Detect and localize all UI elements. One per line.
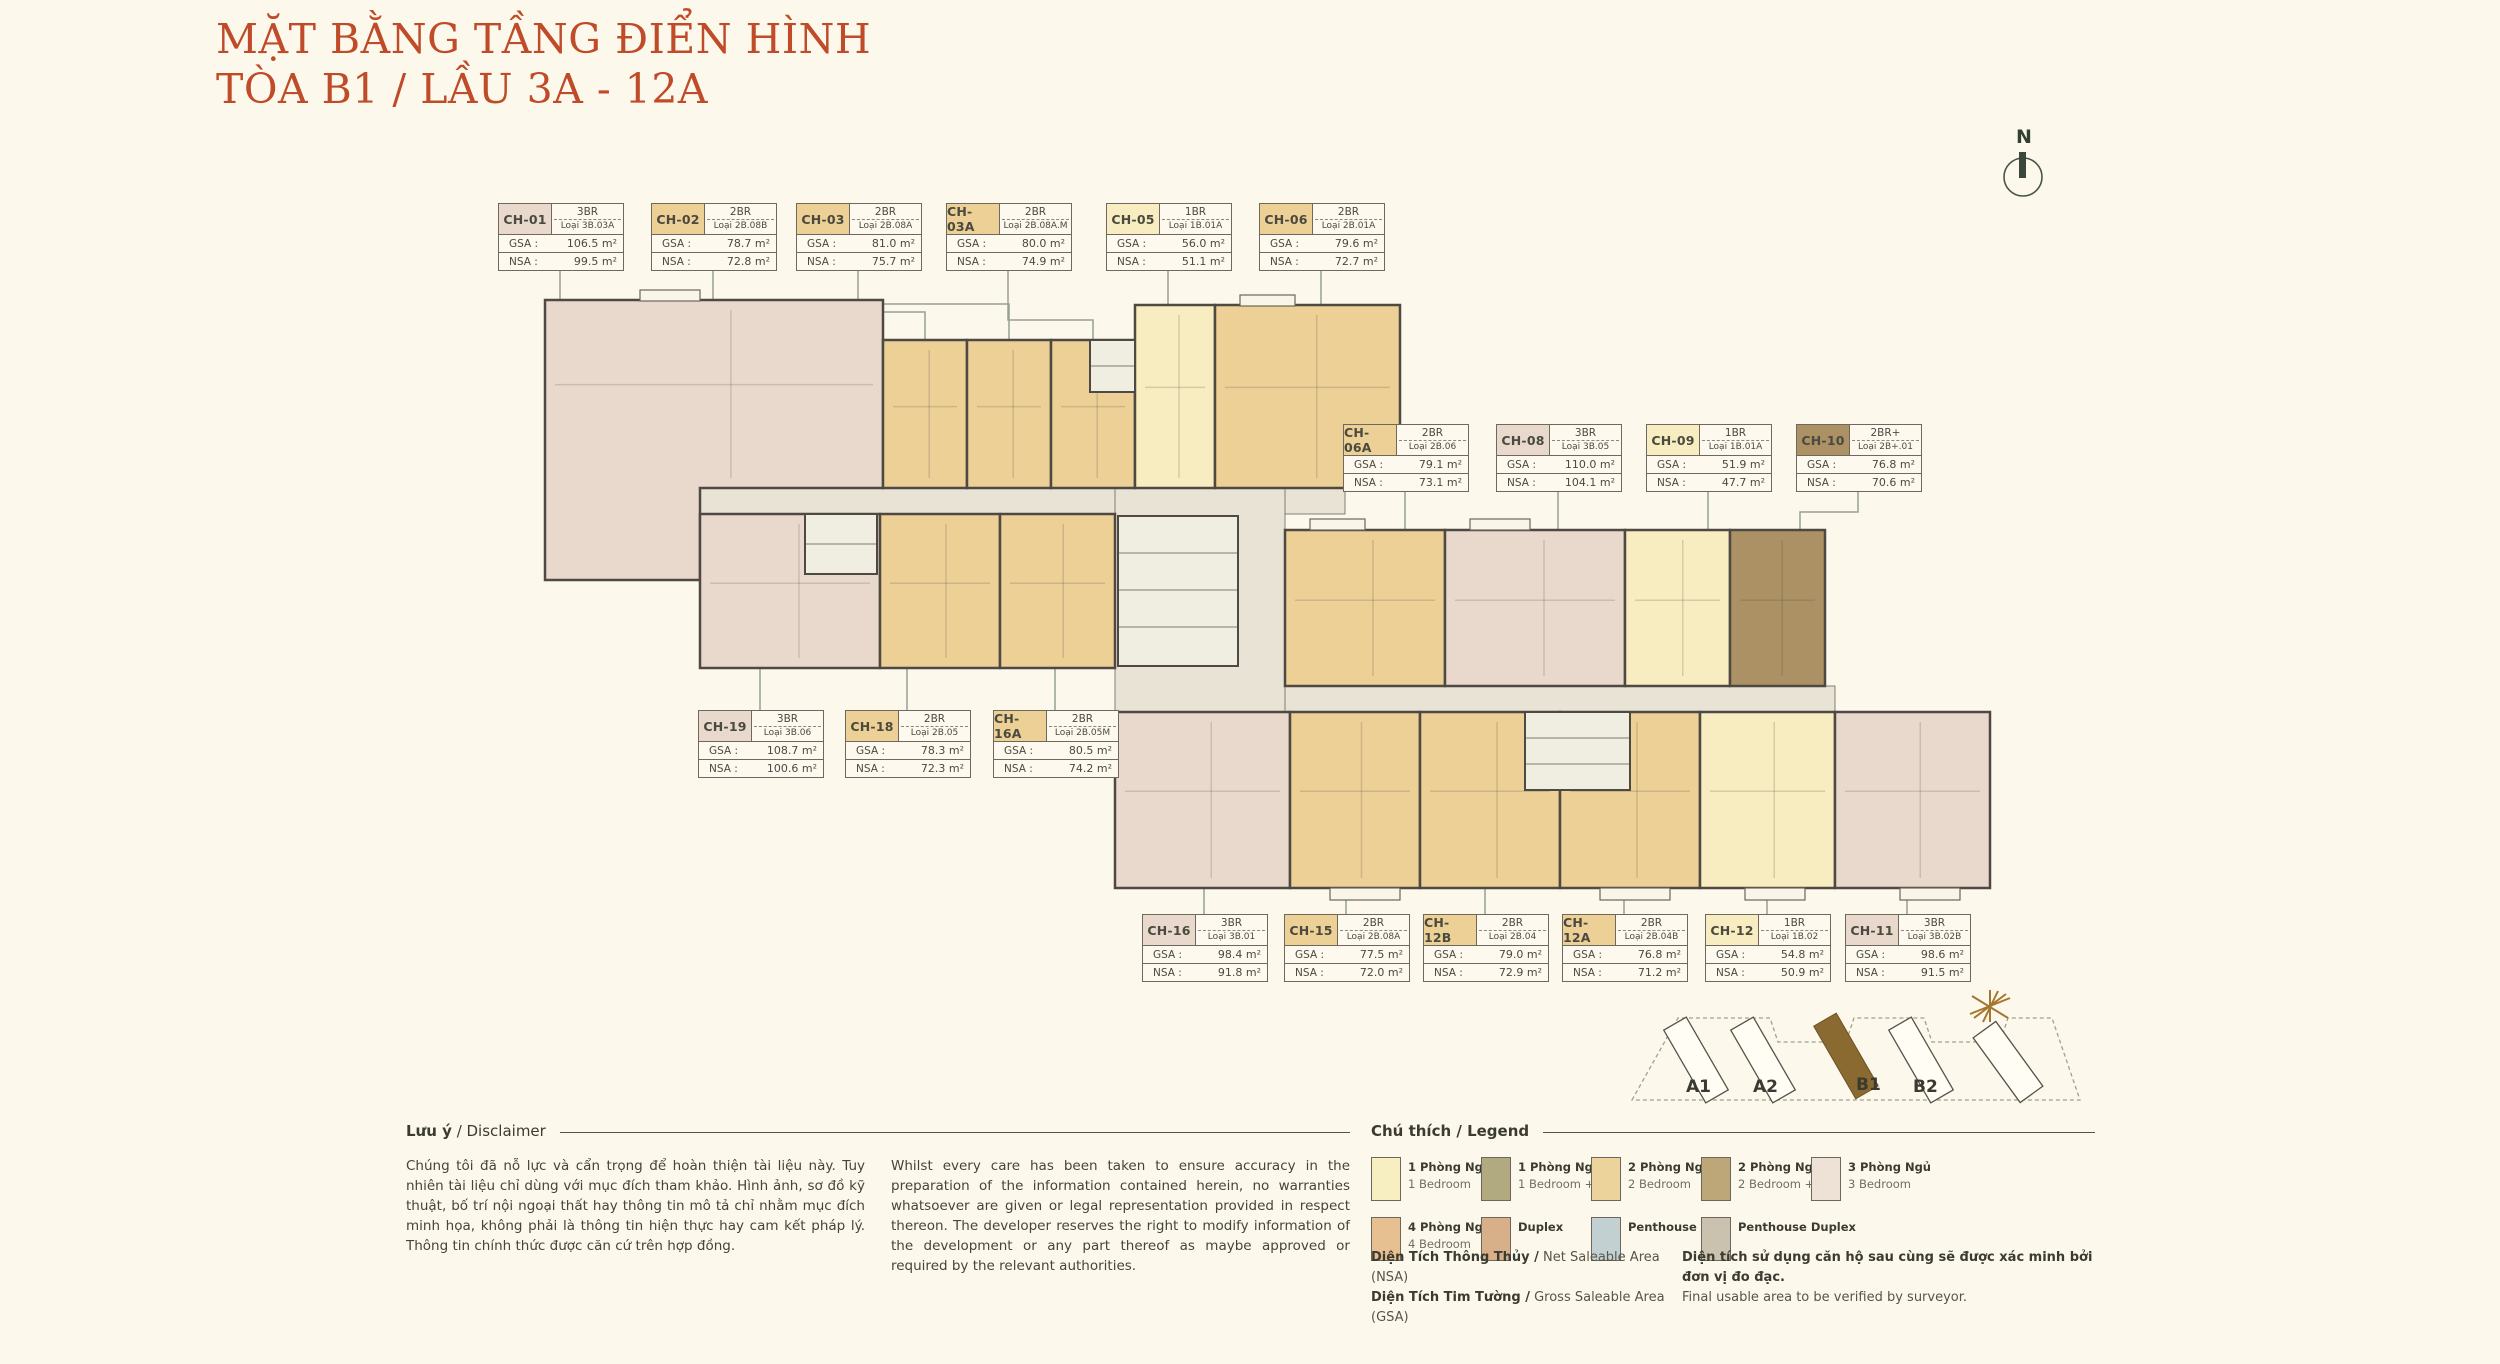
unit-nsa-value: 104.1 m² xyxy=(1536,476,1615,489)
unit-gsa-value: 56.0 m² xyxy=(1146,237,1225,250)
unit-gsa-row: GSA :108.7 m² xyxy=(699,742,823,759)
sitemap-label-b1: B1 xyxy=(1856,1075,1881,1095)
unit-gsa-value: 78.7 m² xyxy=(691,237,770,250)
unit-nsa-value: 75.7 m² xyxy=(836,255,915,268)
disclaimer-heading-rest: / Disclaimer xyxy=(452,1122,546,1140)
compass-n-label: N xyxy=(2016,126,2032,148)
leader-ch-03a xyxy=(1008,270,1093,340)
unit-gsa-value: 76.8 m² xyxy=(1836,458,1915,471)
unit-gsa-row: GSA :80.5 m² xyxy=(994,742,1118,759)
unit-id: CH-16A xyxy=(994,711,1047,741)
unit-ch-12 xyxy=(1700,712,1835,888)
unit-id: CH-05 xyxy=(1107,204,1160,234)
unit-bedroom-type: 2BR xyxy=(1072,713,1093,726)
unit-gsa-row: GSA :98.6 m² xyxy=(1846,946,1970,963)
unit-id: CH-11 xyxy=(1846,915,1899,945)
unit-label-ch-16: CH-163BRLoại 3B.01GSA :98.4 m²NSA :91.8 … xyxy=(1142,914,1268,982)
unit-nsa-row: NSA :72.8 m² xyxy=(652,252,776,270)
unit-bedroom-type: 2BR xyxy=(730,206,751,219)
unit-gsa-value: 80.5 m² xyxy=(1033,744,1112,757)
unit-gsa-row: GSA :79.6 m² xyxy=(1260,235,1384,252)
unit-nsa-row: NSA :72.7 m² xyxy=(1260,252,1384,270)
unit-gsa-value: 51.9 m² xyxy=(1686,458,1765,471)
unit-label-ch-02: CH-022BRLoại 2B.08BGSA :78.7 m²NSA :72.8… xyxy=(651,203,777,271)
unit-gsa-row: GSA :106.5 m² xyxy=(499,235,623,252)
unit-bedroom-type: 1BR xyxy=(1185,206,1206,219)
unit-label-ch-05: CH-051BRLoại 1B.01AGSA :56.0 m²NSA :51.1… xyxy=(1106,203,1232,271)
legend-heading-text: Chú thích / Legend xyxy=(1371,1122,1529,1140)
unit-layout-code: Loại 2B.04 xyxy=(1479,930,1546,944)
unit-nsa-row: NSA :51.1 m² xyxy=(1107,252,1231,270)
unit-gsa-row: GSA :76.8 m² xyxy=(1563,946,1687,963)
unit-id: CH-06A xyxy=(1344,425,1397,455)
unit-layout-code: Loại 3B.06 xyxy=(754,726,821,740)
legend-item-4: 3 Phòng Ngủ3 Bedroom xyxy=(1811,1157,1921,1201)
disclaimer-heading-rule xyxy=(560,1132,1350,1133)
surveyor-note: Diện tích sử dụng căn hộ sau cùng sẽ đượ… xyxy=(1682,1248,2112,1308)
unit-nsa-value: 72.3 m² xyxy=(885,762,964,775)
unit-label-ch-01: CH-013BRLoại 3B.03AGSA :106.5 m²NSA :99.… xyxy=(498,203,624,271)
unit-nsa-value: 72.0 m² xyxy=(1324,966,1403,979)
unit-nsa-row: NSA :73.1 m² xyxy=(1344,473,1468,491)
area-definitions: Diện Tích Thông Thủy / Net Saleable Area… xyxy=(1371,1248,1671,1328)
unit-id: CH-08 xyxy=(1497,425,1550,455)
legend: Chú thích / Legend 1 Phòng Ngủ1 Bedroom1… xyxy=(1371,1122,2095,1261)
unit-nsa-row: NSA :72.0 m² xyxy=(1285,963,1409,981)
unit-layout-code: Loại 3B.01 xyxy=(1198,930,1265,944)
brochure-page: CH-013BRLoại 3B.03AGSA :106.5 m²NSA :99.… xyxy=(0,0,2500,1364)
legend-item-1: 1 Phòng Ngủ +1 Bedroom + xyxy=(1481,1157,1591,1201)
unit-id: CH-09 xyxy=(1647,425,1700,455)
unit-ch-16 xyxy=(1115,712,1290,888)
legend-swatch xyxy=(1371,1157,1401,1201)
unit-nsa-row: NSA :91.5 m² xyxy=(1846,963,1970,981)
unit-gsa-row: GSA :77.5 m² xyxy=(1285,946,1409,963)
unit-bedroom-type: 3BR xyxy=(777,713,798,726)
unit-id: CH-19 xyxy=(699,711,752,741)
unit-label-ch-03: CH-032BRLoại 2B.08AGSA :81.0 m²NSA :75.7… xyxy=(796,203,922,271)
unit-nsa-value: 99.5 m² xyxy=(538,255,617,268)
unit-ch-02 xyxy=(883,340,967,488)
unit-ch-18 xyxy=(880,514,1000,668)
disclaimer: Lưu ý / Disclaimer Chúng tôi đã nỗ lực v… xyxy=(406,1122,1350,1277)
legend-label-vi: 4 Phòng Ngủ xyxy=(1408,1219,1491,1236)
unit-gsa-value: 81.0 m² xyxy=(836,237,915,250)
legend-label-vi: 3 Phòng Ngủ xyxy=(1848,1159,1931,1176)
unit-gsa-row: GSA :76.8 m² xyxy=(1797,456,1921,473)
unit-label-ch-03a: CH-03A2BRLoại 2B.08A.MGSA :80.0 m²NSA :7… xyxy=(946,203,1072,271)
unit-gsa-row: GSA :78.3 m² xyxy=(846,742,970,759)
unit-gsa-value: 98.4 m² xyxy=(1182,948,1261,961)
sitemap-label-a2: A2 xyxy=(1753,1077,1778,1097)
unit-label-ch-08: CH-083BRLoại 3B.05GSA :110.0 m²NSA :104.… xyxy=(1496,424,1622,492)
leader-ch-10 xyxy=(1800,488,1858,530)
unit-ch-03 xyxy=(967,340,1051,488)
unit-label-ch-12a: CH-12A2BRLoại 2B.04BGSA :76.8 m²NSA :71.… xyxy=(1562,914,1688,982)
unit-layout-code: Loại 2B.08B xyxy=(707,219,774,233)
unit-gsa-value: 54.8 m² xyxy=(1745,948,1824,961)
unit-ch-10 xyxy=(1730,530,1825,686)
legend-label-vi: Duplex xyxy=(1518,1219,1563,1236)
north-compass-icon: N xyxy=(1995,112,2065,207)
legend-label-vi: Penthouse xyxy=(1628,1219,1697,1236)
disclaimer-heading: Lưu ý / Disclaimer xyxy=(406,1122,1350,1140)
unit-ch-06a xyxy=(1285,530,1445,686)
unit-bedroom-type: 1BR xyxy=(1725,427,1746,440)
legend-label-vi: Penthouse Duplex xyxy=(1738,1219,1856,1236)
unit-bedroom-type: 2BR xyxy=(1422,427,1443,440)
unit-gsa-value: 80.0 m² xyxy=(986,237,1065,250)
unit-bedroom-type: 3BR xyxy=(1575,427,1596,440)
unit-bedroom-type: 2BR+ xyxy=(1871,427,1901,440)
unit-nsa-value: 74.9 m² xyxy=(986,255,1065,268)
unit-gsa-value: 110.0 m² xyxy=(1536,458,1615,471)
unit-label-ch-06a: CH-06A2BRLoại 2B.06GSA :79.1 m²NSA :73.1… xyxy=(1343,424,1469,492)
legend-item-0: 1 Phòng Ngủ1 Bedroom xyxy=(1371,1157,1481,1201)
unit-nsa-row: NSA :47.7 m² xyxy=(1647,473,1771,491)
legend-item-3: 2 Phòng Ngủ +2 Bedroom + xyxy=(1701,1157,1811,1201)
legend-label-vi: 1 Phòng Ngủ xyxy=(1408,1159,1491,1176)
unit-nsa-row: NSA :104.1 m² xyxy=(1497,473,1621,491)
unit-gsa-row: GSA :54.8 m² xyxy=(1706,946,1830,963)
unit-label-ch-16a: CH-16A2BRLoại 2B.05MGSA :80.5 m²NSA :74.… xyxy=(993,710,1119,778)
unit-nsa-row: NSA :100.6 m² xyxy=(699,759,823,777)
unit-nsa-row: NSA :99.5 m² xyxy=(499,252,623,270)
unit-gsa-row: GSA :81.0 m² xyxy=(797,235,921,252)
unit-nsa-value: 72.7 m² xyxy=(1299,255,1378,268)
unit-nsa-value: 91.8 m² xyxy=(1182,966,1261,979)
legend-item-2: 2 Phòng Ngủ2 Bedroom xyxy=(1591,1157,1701,1201)
page-title-line2: TÒA B1 / LẦU 3A - 12A xyxy=(216,64,871,114)
unit-gsa-row: GSA :79.0 m² xyxy=(1424,946,1548,963)
legend-swatch xyxy=(1811,1157,1841,1201)
legend-label-vi: 2 Phòng Ngủ xyxy=(1628,1159,1711,1176)
unit-nsa-value: 70.6 m² xyxy=(1836,476,1915,489)
legend-label-en: 3 Bedroom xyxy=(1848,1176,1931,1193)
unit-bedroom-type: 2BR xyxy=(924,713,945,726)
unit-bedroom-type: 2BR xyxy=(1641,917,1662,930)
legend-label-en: 1 Bedroom xyxy=(1408,1176,1491,1193)
unit-layout-code: Loại 2B+.01 xyxy=(1852,440,1919,454)
unit-bedroom-type: 2BR xyxy=(1502,917,1523,930)
legend-swatch xyxy=(1591,1157,1621,1201)
unit-ch-11 xyxy=(1835,712,1990,888)
unit-label-ch-19: CH-193BRLoại 3B.06GSA :108.7 m²NSA :100.… xyxy=(698,710,824,778)
unit-nsa-value: 72.9 m² xyxy=(1463,966,1542,979)
unit-layout-code: Loại 3B.05 xyxy=(1552,440,1619,454)
unit-nsa-value: 73.1 m² xyxy=(1383,476,1462,489)
unit-label-ch-12: CH-121BRLoại 1B.02GSA :54.8 m²NSA :50.9 … xyxy=(1705,914,1831,982)
gsa-definition: Diện Tích Tim Tường / Gross Saleable Are… xyxy=(1371,1288,1671,1328)
surveyor-note-vi: Diện tích sử dụng căn hộ sau cùng sẽ đượ… xyxy=(1682,1248,2112,1288)
unit-id: CH-03A xyxy=(947,204,1000,234)
unit-nsa-value: 50.9 m² xyxy=(1745,966,1824,979)
unit-label-ch-10: CH-102BR+Loại 2B+.01GSA :76.8 m²NSA :70.… xyxy=(1796,424,1922,492)
unit-id: CH-18 xyxy=(846,711,899,741)
unit-gsa-row: GSA :51.9 m² xyxy=(1647,456,1771,473)
unit-id: CH-10 xyxy=(1797,425,1850,455)
unit-id: CH-06 xyxy=(1260,204,1313,234)
unit-id: CH-12 xyxy=(1706,915,1759,945)
unit-nsa-value: 72.8 m² xyxy=(691,255,770,268)
unit-id: CH-12B xyxy=(1424,915,1477,945)
unit-gsa-value: 79.1 m² xyxy=(1383,458,1462,471)
unit-layout-code: Loại 2B.04B xyxy=(1618,930,1685,944)
legend-heading: Chú thích / Legend xyxy=(1371,1122,2095,1140)
unit-gsa-value: 98.6 m² xyxy=(1885,948,1964,961)
unit-gsa-value: 78.3 m² xyxy=(885,744,964,757)
unit-gsa-value: 76.8 m² xyxy=(1602,948,1681,961)
unit-layout-code: Loại 2B.08A xyxy=(852,219,919,233)
unit-layout-code: Loại 3B.02B xyxy=(1901,930,1968,944)
unit-id: CH-12A xyxy=(1563,915,1616,945)
unit-id: CH-03 xyxy=(797,204,850,234)
unit-nsa-row: NSA :74.2 m² xyxy=(994,759,1118,777)
unit-nsa-value: 71.2 m² xyxy=(1602,966,1681,979)
unit-layout-code: Loại 1B.01A xyxy=(1702,440,1769,454)
unit-layout-code: Loại 1B.02 xyxy=(1761,930,1828,944)
unit-layout-code: Loại 3B.03A xyxy=(554,219,621,233)
unit-nsa-row: NSA :72.9 m² xyxy=(1424,963,1548,981)
unit-layout-code: Loại 2B.01A xyxy=(1315,219,1382,233)
unit-label-ch-11: CH-113BRLoại 3B.02BGSA :98.6 m²NSA :91.5… xyxy=(1845,914,1971,982)
sitemap-building-extra xyxy=(1973,1021,2043,1102)
legend-heading-rule xyxy=(1543,1132,2095,1133)
unit-bedroom-type: 2BR xyxy=(875,206,896,219)
disclaimer-text-en: Whilst every care has been taken to ensu… xyxy=(891,1157,1350,1277)
unit-gsa-value: 77.5 m² xyxy=(1324,948,1403,961)
unit-nsa-row: NSA :74.9 m² xyxy=(947,252,1071,270)
legend-swatch xyxy=(1481,1157,1511,1201)
site-key-map: A1 A2 B1 B2 xyxy=(1618,988,2098,1118)
unit-gsa-row: GSA :56.0 m² xyxy=(1107,235,1231,252)
disclaimer-text-vi: Chúng tôi đã nỗ lực và cẩn trọng để hoàn… xyxy=(406,1157,865,1277)
legend-label-en: 2 Bedroom xyxy=(1628,1176,1711,1193)
tree-ornament-icon xyxy=(1970,990,2010,1022)
sitemap-label-b2: B2 xyxy=(1913,1077,1938,1097)
unit-label-ch-12b: CH-12B2BRLoại 2B.04GSA :79.0 m²NSA :72.9… xyxy=(1423,914,1549,982)
unit-gsa-value: 108.7 m² xyxy=(738,744,817,757)
legend-swatch xyxy=(1701,1157,1731,1201)
unit-id: CH-15 xyxy=(1285,915,1338,945)
unit-layout-code: Loại 2B.05M xyxy=(1049,726,1116,740)
page-title-line1: MẶT BẰNG TẦNG ĐIỂN HÌNH xyxy=(216,14,871,64)
unit-nsa-row: NSA :72.3 m² xyxy=(846,759,970,777)
unit-ch-05 xyxy=(1135,305,1215,488)
unit-ch-08 xyxy=(1445,530,1625,686)
legend-grid: 1 Phòng Ngủ1 Bedroom1 Phòng Ngủ +1 Bedro… xyxy=(1371,1157,2095,1261)
unit-nsa-value: 74.2 m² xyxy=(1033,762,1112,775)
unit-layout-code: Loại 2B.06 xyxy=(1399,440,1466,454)
unit-nsa-row: NSA :91.8 m² xyxy=(1143,963,1267,981)
unit-nsa-row: NSA :50.9 m² xyxy=(1706,963,1830,981)
unit-nsa-value: 47.7 m² xyxy=(1686,476,1765,489)
unit-gsa-value: 79.6 m² xyxy=(1299,237,1378,250)
unit-layout-code: Loại 2B.08A.M xyxy=(1002,219,1069,233)
unit-nsa-row: NSA :75.7 m² xyxy=(797,252,921,270)
nsa-definition: Diện Tích Thông Thủy / Net Saleable Area… xyxy=(1371,1248,1671,1288)
unit-label-ch-06: CH-062BRLoại 2B.01AGSA :79.6 m²NSA :72.7… xyxy=(1259,203,1385,271)
unit-bedroom-type: 1BR xyxy=(1784,917,1805,930)
unit-gsa-row: GSA :78.7 m² xyxy=(652,235,776,252)
surveyor-note-en: Final usable area to be verified by surv… xyxy=(1682,1288,2112,1308)
unit-bedroom-type: 2BR xyxy=(1338,206,1359,219)
unit-id: CH-16 xyxy=(1143,915,1196,945)
unit-gsa-row: GSA :80.0 m² xyxy=(947,235,1071,252)
unit-nsa-row: NSA :70.6 m² xyxy=(1797,473,1921,491)
unit-ch-16a xyxy=(1000,514,1115,668)
sitemap-label-a1: A1 xyxy=(1686,1077,1711,1097)
unit-layout-code: Loại 2B.08A xyxy=(1340,930,1407,944)
disclaimer-heading-bold: Lưu ý xyxy=(406,1122,452,1140)
unit-layout-code: Loại 1B.01A xyxy=(1162,219,1229,233)
unit-bedroom-type: 3BR xyxy=(1924,917,1945,930)
unit-gsa-row: GSA :79.1 m² xyxy=(1344,456,1468,473)
unit-nsa-row: NSA :71.2 m² xyxy=(1563,963,1687,981)
page-title: MẶT BẰNG TẦNG ĐIỂN HÌNH TÒA B1 / LẦU 3A … xyxy=(216,14,871,114)
unit-nsa-value: 91.5 m² xyxy=(1885,966,1964,979)
unit-gsa-value: 79.0 m² xyxy=(1463,948,1542,961)
unit-nsa-value: 51.1 m² xyxy=(1146,255,1225,268)
unit-bedroom-type: 3BR xyxy=(1221,917,1242,930)
unit-bedroom-type: 3BR xyxy=(577,206,598,219)
unit-layout-code: Loại 2B.05 xyxy=(901,726,968,740)
unit-nsa-value: 100.6 m² xyxy=(738,762,817,775)
unit-id: CH-02 xyxy=(652,204,705,234)
unit-gsa-row: GSA :98.4 m² xyxy=(1143,946,1267,963)
unit-gsa-row: GSA :110.0 m² xyxy=(1497,456,1621,473)
unit-label-ch-15: CH-152BRLoại 2B.08AGSA :77.5 m²NSA :72.0… xyxy=(1284,914,1410,982)
unit-bedroom-type: 2BR xyxy=(1025,206,1046,219)
unit-label-ch-09: CH-091BRLoại 1B.01AGSA :51.9 m²NSA :47.7… xyxy=(1646,424,1772,492)
unit-id: CH-01 xyxy=(499,204,552,234)
unit-gsa-value: 106.5 m² xyxy=(538,237,617,250)
unit-bedroom-type: 2BR xyxy=(1363,917,1384,930)
unit-ch-09 xyxy=(1625,530,1730,686)
unit-ch-15 xyxy=(1290,712,1420,888)
unit-label-ch-18: CH-182BRLoại 2B.05GSA :78.3 m²NSA :72.3 … xyxy=(845,710,971,778)
